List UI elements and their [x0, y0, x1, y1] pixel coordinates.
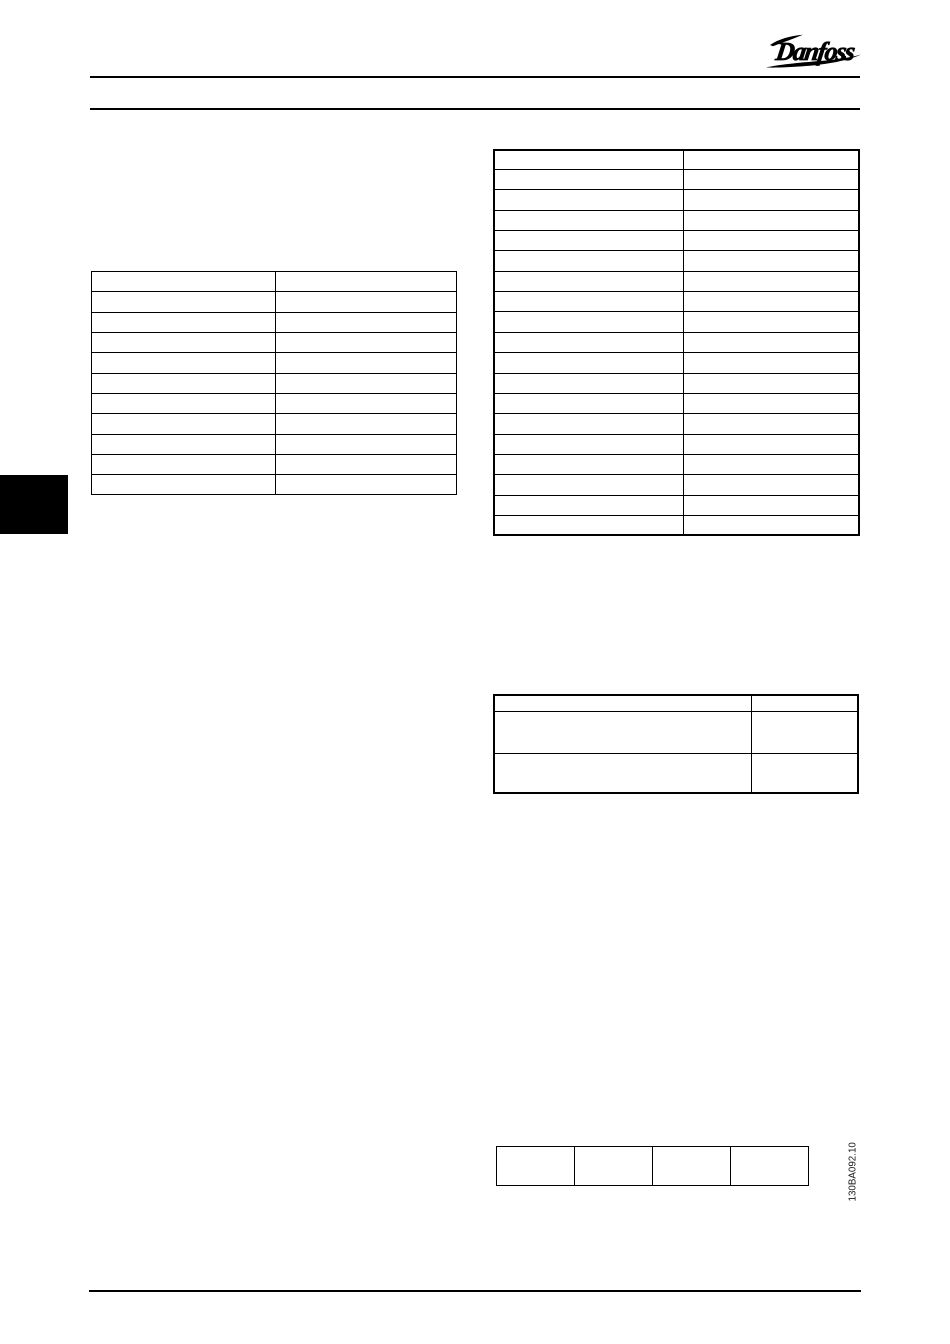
svg-text:130BA092.10: 130BA092.10: [848, 1142, 859, 1202]
